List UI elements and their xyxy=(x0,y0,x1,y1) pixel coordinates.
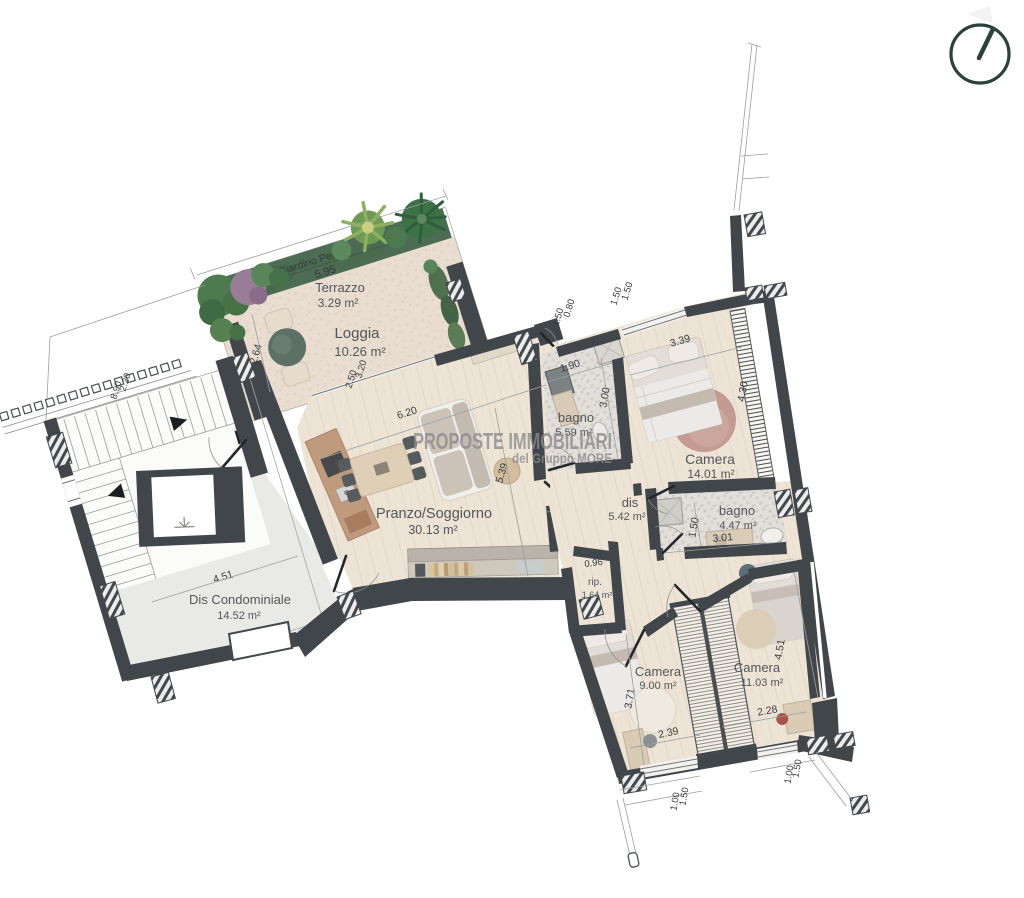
svg-text:dis: dis xyxy=(622,495,639,510)
svg-text:del Gruppo MORE: del Gruppo MORE xyxy=(512,451,612,466)
svg-text:3.29 m²: 3.29 m² xyxy=(318,296,359,310)
svg-text:Camera: Camera xyxy=(635,664,682,679)
svg-text:bagno: bagno xyxy=(558,410,594,425)
svg-text:Camera: Camera xyxy=(685,451,735,467)
svg-text:Pranzo/Soggiorno: Pranzo/Soggiorno xyxy=(376,506,492,522)
svg-text:14.01 m²: 14.01 m² xyxy=(687,467,734,481)
svg-text:Dis Condominiale: Dis Condominiale xyxy=(189,592,291,607)
svg-text:3.01: 3.01 xyxy=(712,531,734,545)
svg-text:14.52 m²: 14.52 m² xyxy=(217,610,261,622)
svg-text:Terrazzo: Terrazzo xyxy=(315,280,365,295)
svg-text:5.42 m²: 5.42 m² xyxy=(608,511,646,523)
svg-text:bagno: bagno xyxy=(719,503,755,518)
svg-text:9.00 m²: 9.00 m² xyxy=(639,680,677,692)
svg-text:1.64 m²: 1.64 m² xyxy=(582,590,613,600)
svg-text:11.03 m²: 11.03 m² xyxy=(741,677,784,689)
svg-text:Camera: Camera xyxy=(734,660,781,675)
svg-text:4.47 m²: 4.47 m² xyxy=(719,520,757,532)
svg-text:rip.: rip. xyxy=(588,577,602,588)
svg-text:10.26 m²: 10.26 m² xyxy=(334,344,386,359)
svg-text:Loggia: Loggia xyxy=(334,325,380,342)
svg-text:30.13 m²: 30.13 m² xyxy=(408,523,457,537)
